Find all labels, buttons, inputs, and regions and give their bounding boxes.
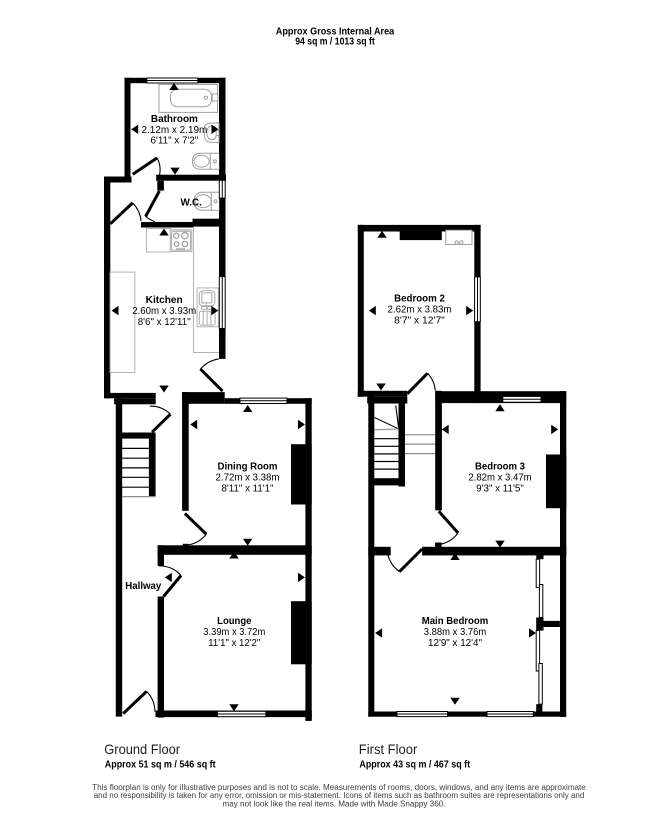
svg-text:Approx 51 sq m / 546 sq ft: Approx 51 sq m / 546 sq ft <box>105 760 216 771</box>
svg-text:2.62m x 3.83m: 2.62m x 3.83m <box>388 305 452 316</box>
svg-text:11'1" x 12'2": 11'1" x 12'2" <box>208 638 260 649</box>
svg-text:Hallway: Hallway <box>125 581 161 592</box>
svg-text:8'11" x 11'1": 8'11" x 11'1" <box>222 484 274 495</box>
svg-text:2.60m x 3.93m: 2.60m x 3.93m <box>132 306 196 317</box>
svg-text:W.C.: W.C. <box>181 198 203 209</box>
svg-text:94 sq m / 1013 sq ft: 94 sq m / 1013 sq ft <box>295 36 375 47</box>
svg-text:2.82m x 3.47m: 2.82m x 3.47m <box>468 473 531 484</box>
svg-text:8'6" x 12'11": 8'6" x 12'11" <box>138 317 191 328</box>
svg-text:3.88m x 3.76m: 3.88m x 3.76m <box>424 627 487 638</box>
svg-text:Bedroom 2: Bedroom 2 <box>394 294 445 305</box>
svg-text:Ground Floor: Ground Floor <box>104 741 180 757</box>
svg-text:Lounge: Lounge <box>217 616 252 627</box>
svg-text:3.39m x 3.72m: 3.39m x 3.72m <box>203 627 265 638</box>
svg-text:First Floor: First Floor <box>359 741 418 757</box>
svg-text:Main Bedroom: Main Bedroom <box>422 616 489 627</box>
svg-text:Approx 43 sq m / 467 sq ft: Approx 43 sq m / 467 sq ft <box>359 760 470 771</box>
svg-text:Kitchen: Kitchen <box>146 295 183 306</box>
svg-text:Dining Room: Dining Room <box>218 462 278 473</box>
svg-text:9'3" x 11'5": 9'3" x 11'5" <box>476 484 524 495</box>
svg-text:8'7" x 12'7": 8'7" x 12'7" <box>394 316 445 327</box>
svg-text:2.72m x 3.38m: 2.72m x 3.38m <box>216 473 280 484</box>
svg-text:12'9" x 12'4": 12'9" x 12'4" <box>428 638 482 649</box>
svg-text:2.12m x 2.19m: 2.12m x 2.19m <box>142 125 208 136</box>
svg-text:Bathroom: Bathroom <box>151 114 198 125</box>
svg-text:6'11" x 7'2": 6'11" x 7'2" <box>151 136 199 147</box>
svg-text:may not look like the real ite: may not look like the real items. Made w… <box>223 799 446 808</box>
svg-text:Bedroom 3: Bedroom 3 <box>475 462 525 473</box>
